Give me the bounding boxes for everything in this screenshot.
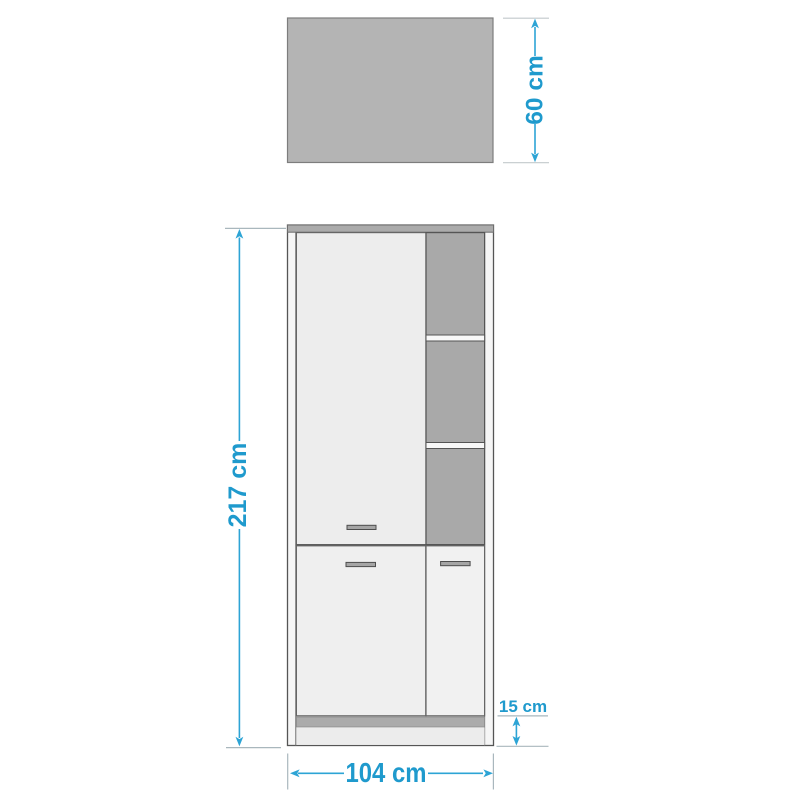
svg-text:217 cm: 217 cm xyxy=(224,443,252,528)
svg-text:15 cm: 15 cm xyxy=(499,697,547,716)
svg-text:104 cm: 104 cm xyxy=(346,757,427,788)
svg-text:60 cm: 60 cm xyxy=(522,55,549,124)
